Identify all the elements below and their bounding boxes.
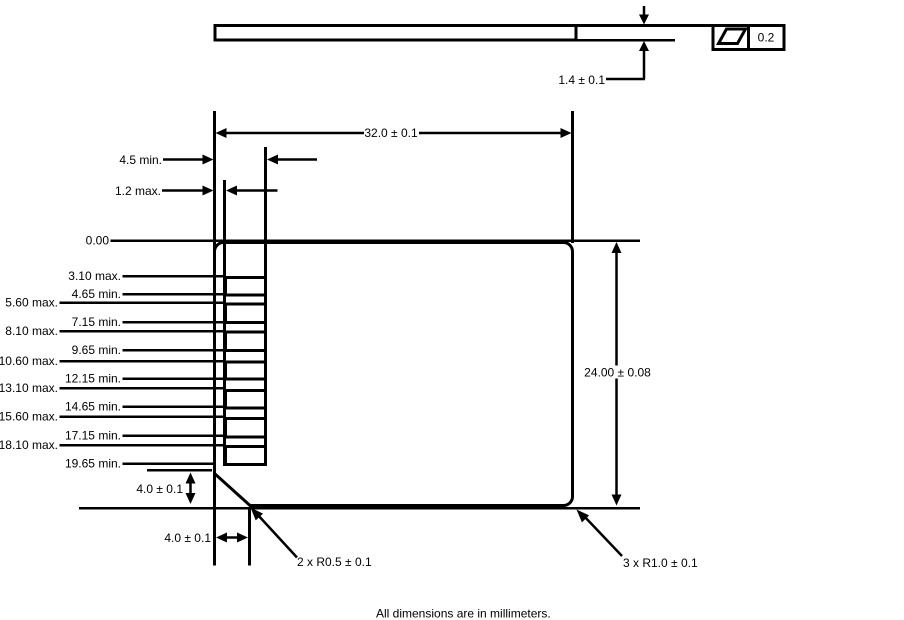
svg-text:0.00: 0.00 [86,234,110,248]
svg-text:17.15 min.: 17.15 min. [65,429,121,443]
svg-text:4.0 ± 0.1: 4.0 ± 0.1 [136,482,183,496]
svg-text:5.60 max.: 5.60 max. [5,296,58,310]
svg-text:2 x R0.5 ± 0.1: 2 x R0.5 ± 0.1 [297,555,372,569]
svg-text:9.65 min.: 9.65 min. [72,343,121,357]
svg-text:8.10 max.: 8.10 max. [5,324,58,338]
svg-text:13.10 max.: 13.10 max. [0,381,58,395]
svg-text:0.2: 0.2 [758,31,775,45]
svg-text:14.65 min.: 14.65 min. [65,400,121,414]
svg-text:19.65 min.: 19.65 min. [65,457,121,471]
svg-text:32.0 ± 0.1: 32.0 ± 0.1 [364,126,418,140]
svg-text:15.60 max.: 15.60 max. [0,410,58,424]
svg-text:4.5 min.: 4.5 min. [119,153,162,167]
svg-text:24.00 ± 0.08: 24.00 ± 0.08 [584,366,651,380]
svg-text:4.65 min.: 4.65 min. [72,287,121,301]
svg-text:3 x R1.0 ± 0.1: 3 x R1.0 ± 0.1 [623,556,698,570]
svg-text:10.60 max.: 10.60 max. [0,354,58,368]
svg-text:4.0 ± 0.1: 4.0 ± 0.1 [164,531,211,545]
svg-text:All dimensions are in millimet: All dimensions are in millimeters. [376,607,551,620]
svg-text:18.10 max.: 18.10 max. [0,438,58,452]
svg-text:1.4 ± 0.1: 1.4 ± 0.1 [558,73,605,87]
svg-text:12.15 min.: 12.15 min. [65,372,121,386]
svg-text:1.2 max.: 1.2 max. [115,184,161,198]
svg-text:7.15 min.: 7.15 min. [72,315,121,329]
svg-text:3.10 max.: 3.10 max. [68,269,121,283]
